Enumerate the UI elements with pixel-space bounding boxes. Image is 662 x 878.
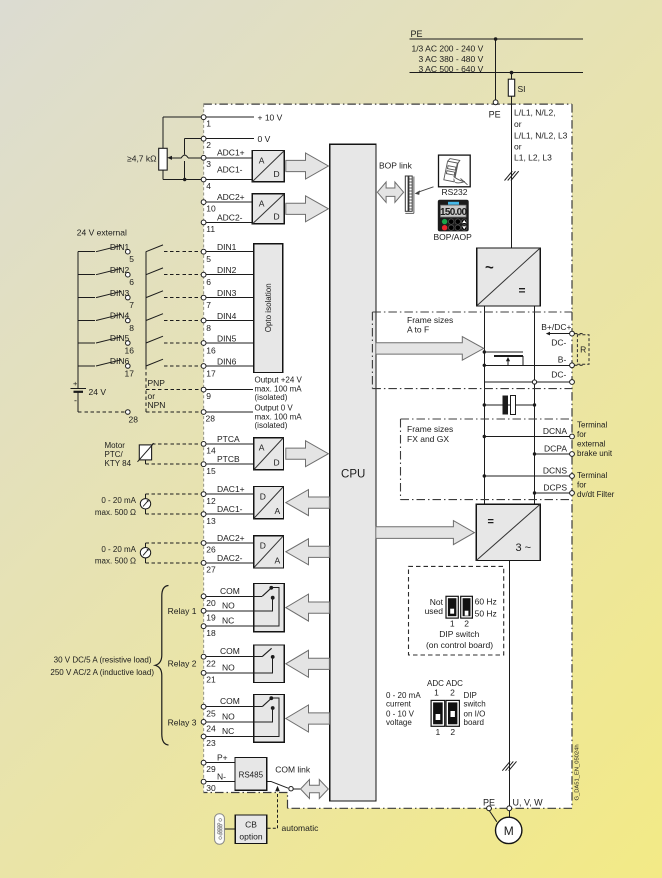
svg-text:3 ~: 3 ~: [516, 542, 532, 554]
svg-text:DAC1-: DAC1-: [217, 504, 243, 514]
svg-text:12: 12: [206, 496, 216, 506]
svg-text:24 V external: 24 V external: [77, 228, 127, 238]
svg-text:6: 6: [129, 277, 134, 287]
svg-text:U, V, W: U, V, W: [513, 798, 544, 808]
svg-text:COM: COM: [220, 696, 240, 706]
svg-text:for: for: [577, 430, 587, 439]
svg-text:150.00: 150.00: [440, 207, 468, 218]
svg-text:CB: CB: [245, 820, 257, 830]
svg-text:Output +24 V: Output +24 V: [255, 375, 303, 384]
svg-text:NO: NO: [222, 662, 235, 672]
svg-text:N-: N-: [217, 772, 226, 782]
svg-text:22: 22: [206, 658, 216, 668]
svg-text:Terminal: Terminal: [577, 471, 607, 480]
svg-text:L1, L2, L3: L1, L2, L3: [514, 153, 552, 163]
svg-text:DIN2: DIN2: [110, 265, 130, 275]
svg-text:28: 28: [129, 414, 139, 424]
svg-text:D: D: [274, 457, 280, 467]
svg-text:8: 8: [206, 323, 211, 333]
svg-text:15: 15: [206, 466, 216, 476]
svg-text:25: 25: [206, 708, 216, 718]
svg-text:Terminal: Terminal: [577, 421, 607, 430]
svg-text:DCNS: DCNS: [543, 465, 567, 475]
svg-text:NO: NO: [222, 711, 235, 721]
svg-text:≥4,7 kΩ: ≥4,7 kΩ: [127, 153, 156, 163]
svg-text:5: 5: [206, 254, 211, 264]
svg-text:or: or: [514, 119, 522, 129]
svg-text:16: 16: [125, 345, 135, 355]
svg-text:1/3 AC 200 - 240 V: 1/3 AC 200 - 240 V: [411, 44, 483, 54]
svg-text:27: 27: [206, 565, 216, 575]
svg-text:21: 21: [206, 675, 216, 685]
svg-text:DAC2+: DAC2+: [217, 533, 245, 543]
svg-text:PE: PE: [483, 798, 495, 808]
svg-text:DIN6: DIN6: [110, 356, 130, 366]
svg-text:DIN1: DIN1: [110, 242, 130, 252]
svg-text:PE: PE: [489, 110, 501, 120]
svg-text:7: 7: [206, 300, 211, 310]
svg-text:PTCA: PTCA: [217, 434, 240, 444]
svg-text:A: A: [259, 199, 265, 209]
svg-text:DIN6: DIN6: [217, 357, 237, 367]
svg-text:dv/dt Filter: dv/dt Filter: [577, 490, 615, 499]
svg-text:max. 100 mA: max. 100 mA: [255, 384, 303, 393]
svg-text:10: 10: [206, 204, 216, 214]
svg-text:board: board: [464, 718, 484, 727]
svg-text:KTY 84: KTY 84: [105, 459, 132, 468]
svg-text:BOP/AOP: BOP/AOP: [434, 232, 473, 242]
svg-text:3 AC 380 - 480 V: 3 AC 380 - 480 V: [419, 54, 484, 64]
svg-text:DCPA: DCPA: [544, 443, 567, 453]
svg-text:A: A: [275, 555, 281, 565]
svg-text:brake unit: brake unit: [577, 449, 613, 458]
svg-text:FX and GX: FX and GX: [407, 434, 449, 444]
svg-text:DCNA: DCNA: [543, 426, 567, 436]
svg-text:2: 2: [464, 619, 469, 629]
svg-text:-: -: [74, 396, 77, 406]
svg-text:A: A: [259, 442, 265, 452]
svg-text:automatic: automatic: [282, 823, 320, 833]
svg-text:19: 19: [206, 612, 216, 622]
svg-text:30: 30: [206, 783, 216, 793]
svg-text:RS232: RS232: [442, 187, 468, 197]
svg-text:M: M: [504, 824, 514, 838]
svg-text:DAC1+: DAC1+: [217, 484, 245, 494]
svg-text:13: 13: [206, 516, 216, 526]
svg-text:1: 1: [434, 687, 439, 697]
svg-text:18: 18: [206, 628, 216, 638]
svg-text:1: 1: [450, 619, 455, 629]
svg-text:3: 3: [206, 159, 211, 169]
svg-text:DIN3: DIN3: [217, 288, 237, 298]
svg-text:+ 10 V: + 10 V: [258, 113, 283, 123]
svg-text:3 AC 500 - 640 V: 3 AC 500 - 640 V: [419, 64, 484, 74]
svg-text:CPU: CPU: [341, 468, 365, 480]
svg-text:NC: NC: [222, 726, 234, 736]
svg-text:5: 5: [129, 254, 134, 264]
svg-text:~: ~: [485, 260, 494, 277]
svg-text:D: D: [260, 541, 266, 551]
svg-text:PE: PE: [411, 29, 423, 39]
svg-text:6: 6: [206, 277, 211, 287]
svg-text:16: 16: [206, 345, 216, 355]
svg-text:250 V AC/2 A (inductive load): 250 V AC/2 A (inductive load): [50, 668, 154, 677]
svg-text:SI: SI: [518, 84, 526, 94]
svg-text:switch: switch: [464, 699, 486, 708]
svg-text:4: 4: [206, 181, 211, 191]
svg-text:current: current: [386, 699, 412, 708]
svg-text:28: 28: [206, 414, 216, 424]
svg-text:NPN: NPN: [148, 400, 166, 410]
svg-text:2: 2: [206, 140, 211, 150]
svg-text:24 V: 24 V: [89, 387, 107, 397]
svg-text:ADC1-: ADC1-: [217, 164, 243, 174]
svg-text:NC: NC: [222, 616, 234, 626]
svg-text:Frame sizes: Frame sizes: [407, 424, 453, 434]
svg-text:ADC1+: ADC1+: [217, 147, 245, 157]
svg-text:DIN1: DIN1: [217, 242, 237, 252]
svg-text:60 Hz: 60 Hz: [475, 597, 497, 607]
svg-text:50 Hz: 50 Hz: [475, 609, 497, 619]
svg-text:B-: B-: [558, 354, 567, 364]
svg-text:0 - 20 mA: 0 - 20 mA: [101, 496, 136, 505]
svg-text:Opto isolation: Opto isolation: [264, 283, 273, 332]
svg-text:PNP: PNP: [148, 378, 166, 388]
svg-text:D: D: [274, 211, 280, 221]
svg-text:7: 7: [129, 300, 134, 310]
svg-text:A to F: A to F: [407, 325, 429, 335]
svg-text:0 - 20 mA: 0 - 20 mA: [101, 545, 136, 554]
svg-text:=: =: [488, 516, 494, 528]
svg-text:RS485: RS485: [239, 770, 264, 779]
svg-text:A: A: [259, 155, 265, 165]
svg-text:ADC2+: ADC2+: [217, 192, 245, 202]
svg-text:DC-: DC-: [551, 370, 566, 380]
svg-text:COM: COM: [220, 586, 240, 596]
svg-text:Relay 2: Relay 2: [168, 659, 197, 669]
svg-text:DAC2-: DAC2-: [217, 553, 243, 563]
svg-text:23: 23: [206, 738, 216, 748]
svg-text:G_DA51_EN_05024h: G_DA51_EN_05024h: [575, 744, 581, 800]
svg-text:L/L1, N/L2, L3: L/L1, N/L2, L3: [514, 131, 568, 141]
svg-text:1: 1: [206, 119, 211, 129]
svg-text:max. 500 Ω: max. 500 Ω: [95, 508, 136, 517]
svg-text:11: 11: [206, 224, 215, 234]
svg-text:DIN5: DIN5: [217, 334, 237, 344]
svg-text:used: used: [425, 606, 444, 616]
svg-text:26: 26: [206, 545, 216, 555]
svg-text:Output 0 V: Output 0 V: [255, 404, 294, 413]
svg-text:30 V DC/5 A (resistive load): 30 V DC/5 A (resistive load): [54, 656, 152, 665]
svg-text:29: 29: [206, 764, 216, 774]
svg-text:DCPS: DCPS: [543, 482, 567, 492]
svg-text:max. 500 Ω: max. 500 Ω: [95, 557, 136, 566]
svg-text:PTCB: PTCB: [217, 454, 240, 464]
svg-text:max. 100 mA: max. 100 mA: [255, 413, 303, 422]
svg-text:14: 14: [206, 446, 216, 456]
svg-text:Relay 1: Relay 1: [168, 606, 197, 616]
svg-text:8: 8: [129, 323, 134, 333]
svg-text:0 V: 0 V: [258, 134, 271, 144]
svg-text:for: for: [577, 481, 587, 490]
svg-text:=: =: [519, 284, 526, 298]
svg-text:option: option: [239, 832, 262, 842]
svg-text:B+/DC+: B+/DC+: [541, 322, 571, 332]
svg-text:COM: COM: [220, 646, 240, 656]
svg-text:DIN4: DIN4: [217, 311, 237, 321]
svg-text:Relay 3: Relay 3: [168, 718, 197, 728]
svg-text:DIN4: DIN4: [110, 311, 130, 321]
svg-text:(isolated): (isolated): [255, 421, 288, 430]
svg-text:P+: P+: [217, 753, 228, 763]
svg-text:or: or: [514, 142, 522, 152]
svg-text:NO: NO: [222, 600, 235, 610]
svg-text:DIN2: DIN2: [217, 265, 237, 275]
svg-text:ADC2-: ADC2-: [217, 212, 243, 222]
svg-text:D: D: [274, 169, 280, 179]
svg-text:+: +: [73, 379, 78, 388]
svg-text:(on control board): (on control board): [426, 640, 493, 650]
svg-text:COM link: COM link: [275, 765, 311, 775]
svg-text:DIP switch: DIP switch: [439, 629, 479, 639]
svg-text:DC-: DC-: [551, 338, 566, 348]
svg-text:voltage: voltage: [386, 718, 412, 727]
svg-text:L/L1, N/L2,: L/L1, N/L2,: [514, 108, 556, 118]
svg-text:DIN5: DIN5: [110, 333, 130, 343]
svg-text:PTC/: PTC/: [105, 450, 124, 459]
svg-text:DIN3: DIN3: [110, 288, 130, 298]
svg-text:2: 2: [450, 727, 455, 737]
svg-text:(isolated): (isolated): [255, 393, 288, 402]
svg-text:17: 17: [206, 368, 216, 378]
svg-text:D: D: [260, 491, 266, 501]
svg-text:2: 2: [450, 687, 455, 697]
svg-text:20: 20: [206, 598, 216, 608]
svg-text:24: 24: [206, 724, 216, 734]
svg-text:Motor: Motor: [105, 441, 126, 450]
svg-text:9: 9: [206, 391, 211, 401]
svg-text:A: A: [275, 506, 281, 516]
svg-text:17: 17: [125, 368, 135, 378]
svg-text:R: R: [580, 345, 586, 355]
svg-text:external: external: [577, 440, 606, 449]
svg-text:Frame sizes: Frame sizes: [407, 315, 453, 325]
svg-text:BOP link: BOP link: [379, 161, 413, 171]
svg-text:1: 1: [436, 727, 441, 737]
